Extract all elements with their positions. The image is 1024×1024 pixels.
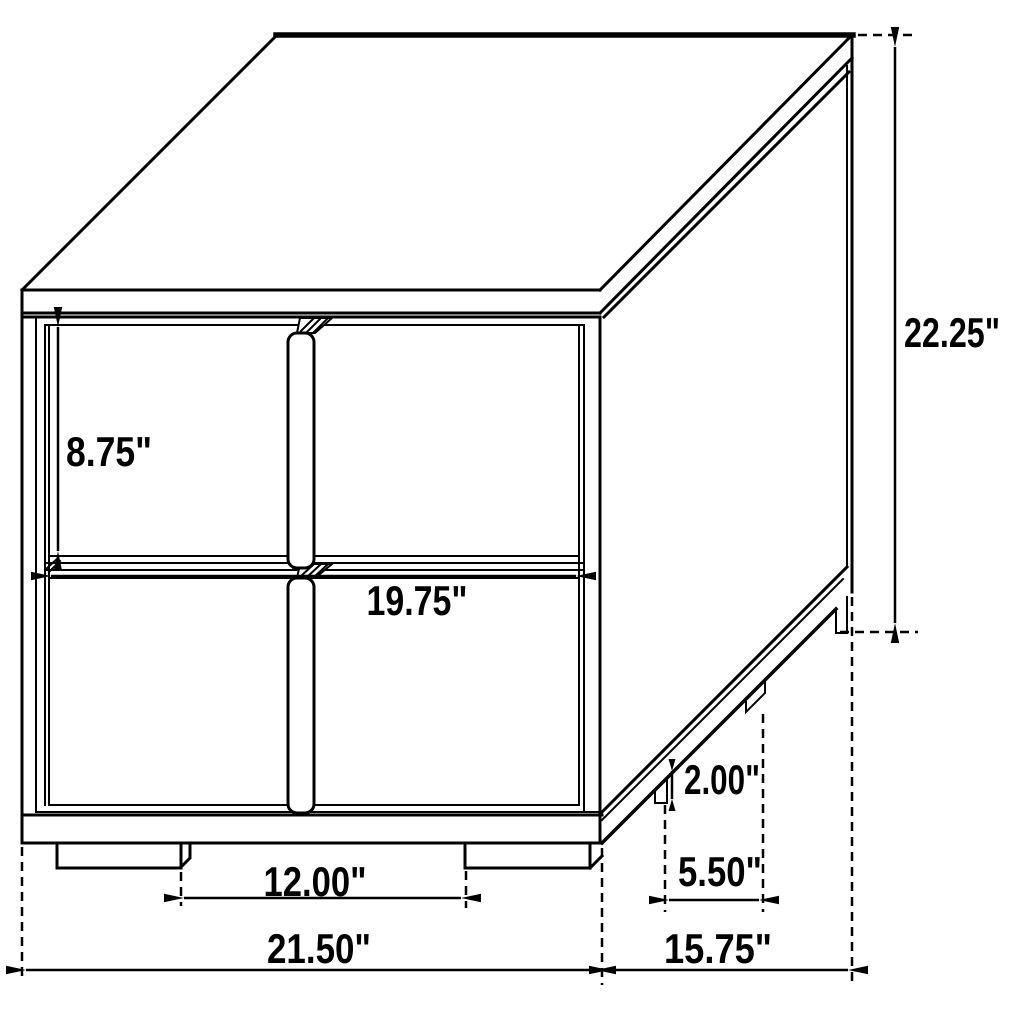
dim-label-front-leg-spacing: 12.00" — [264, 858, 367, 905]
dim-label-drawer-front-height: 8.75" — [66, 428, 152, 475]
dim-label-drawer-front-width: 19.75" — [367, 577, 468, 624]
dim-side-leg-spacing: 5.50" — [669, 848, 762, 900]
lower-drawer-handle — [288, 578, 314, 813]
dim-label-overall-width: 21.50" — [267, 925, 371, 972]
dim-label-overall-height: 22.25" — [904, 309, 1000, 356]
dim-label-overall-depth: 15.75" — [664, 925, 772, 972]
background — [0, 0, 1024, 1024]
dim-label-side-leg-spacing: 5.50" — [678, 848, 762, 895]
dim-label-leg-height: 2.00" — [684, 756, 760, 803]
dimension-drawing-page: 8.75" 19.75" 22.25" 12.00" 21.50" 15.75"… — [0, 0, 1024, 1024]
diagram-canvas: 8.75" 19.75" 22.25" 12.00" 21.50" 15.75"… — [0, 0, 1024, 1024]
dim-leg-height: 2.00" — [672, 756, 760, 803]
upper-drawer-handle — [288, 333, 314, 568]
